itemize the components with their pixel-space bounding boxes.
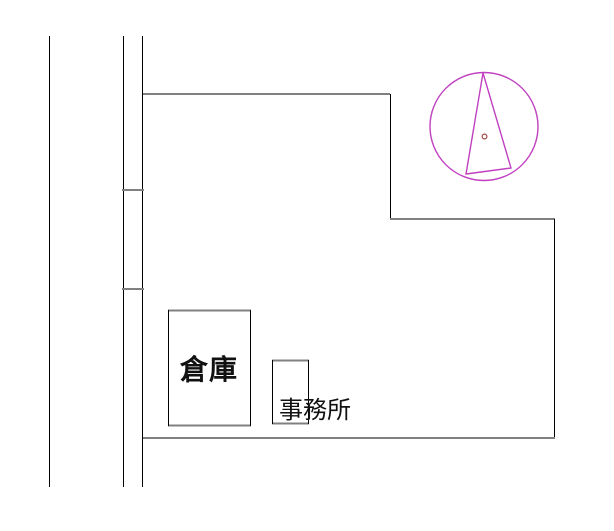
- north-arrow-center-dot-icon: [482, 134, 487, 139]
- site-plan-canvas: 倉庫 事務所: [0, 0, 614, 531]
- property-boundary: [143, 94, 555, 438]
- office-building: 事務所: [272, 360, 351, 424]
- north-arrow-circle-icon: [430, 73, 538, 181]
- road-lines: [50, 36, 145, 487]
- warehouse-label: 倉庫: [179, 353, 238, 385]
- site-plan-drawing: 倉庫 事務所: [0, 0, 614, 531]
- north-arrow-symbol: [430, 73, 538, 181]
- north-arrow-triangle-icon: [466, 73, 511, 174]
- warehouse-building: 倉庫: [168, 310, 251, 426]
- office-label: 事務所: [279, 397, 351, 424]
